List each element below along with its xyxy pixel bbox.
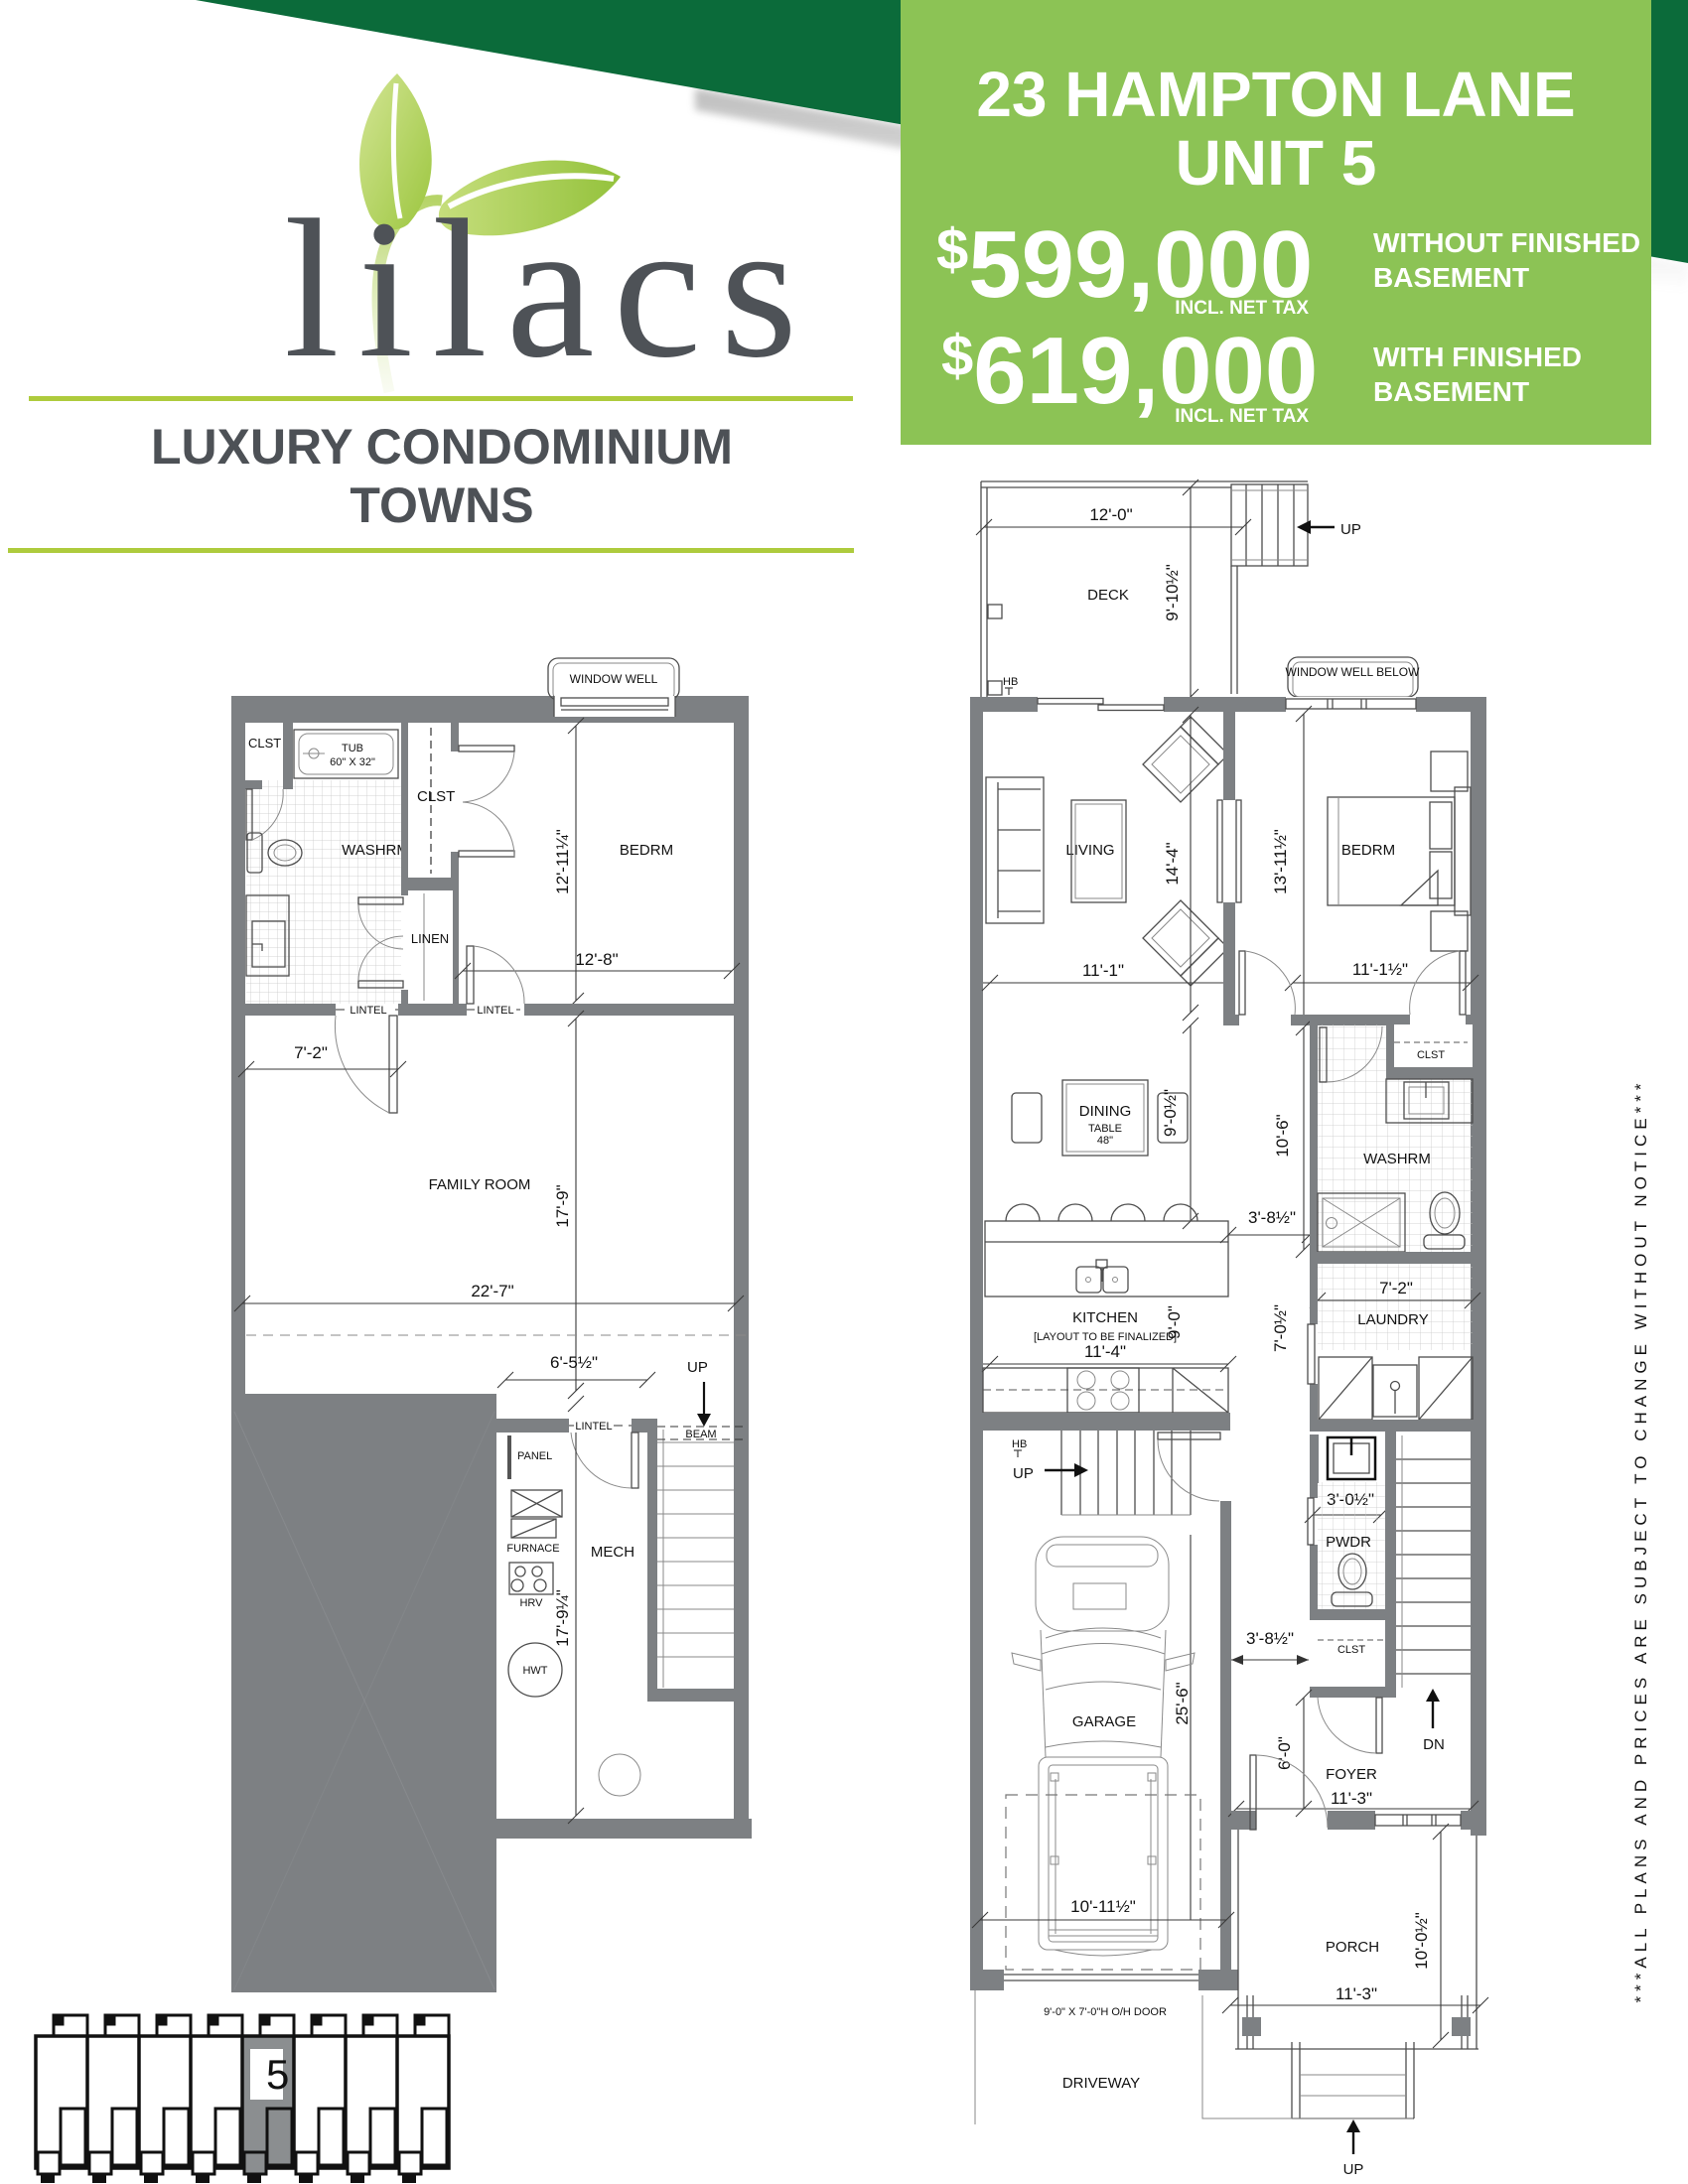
svg-text:TUB: TUB xyxy=(342,743,363,754)
svg-text:LINTEL: LINTEL xyxy=(350,1005,386,1017)
svg-text:11'-1½": 11'-1½" xyxy=(1352,960,1408,979)
svg-text:FOYER: FOYER xyxy=(1326,1766,1377,1783)
svg-text:DRIVEWAY: DRIVEWAY xyxy=(1062,2075,1140,2092)
svg-text:12'-11¼": 12'-11¼" xyxy=(553,829,572,894)
svg-text:CLST: CLST xyxy=(417,788,455,805)
svg-text:48": 48" xyxy=(1097,1135,1113,1147)
svg-text:HRV: HRV xyxy=(519,1597,543,1609)
svg-text:BEDRM: BEDRM xyxy=(620,842,673,859)
svg-text:DECK: DECK xyxy=(1087,587,1129,604)
svg-text:BEDRM: BEDRM xyxy=(1341,842,1395,859)
svg-text:MECH: MECH xyxy=(591,1544,634,1561)
svg-text:CLST: CLST xyxy=(1337,1644,1365,1656)
svg-text:CLST: CLST xyxy=(1417,1049,1445,1061)
svg-text:25'-6": 25'-6" xyxy=(1173,1682,1192,1724)
svg-text:10'-6": 10'-6" xyxy=(1273,1114,1292,1157)
svg-text:HB: HB xyxy=(1012,1438,1027,1450)
svg-text:13'-11½": 13'-11½" xyxy=(1271,829,1290,894)
svg-text:BEAM: BEAM xyxy=(685,1429,716,1440)
svg-text:KITCHEN: KITCHEN xyxy=(1072,1309,1138,1326)
svg-text:11'-3": 11'-3" xyxy=(1336,1984,1377,2003)
svg-text:11'-4": 11'-4" xyxy=(1084,1342,1126,1361)
svg-text:9'-0½": 9'-0½" xyxy=(1161,1089,1180,1137)
svg-text:CLST: CLST xyxy=(248,736,281,751)
svg-text:11'-3": 11'-3" xyxy=(1331,1789,1372,1808)
svg-text:7'-2": 7'-2" xyxy=(1379,1279,1413,1297)
svg-text:PANEL: PANEL xyxy=(517,1450,552,1462)
svg-text:DINING: DINING xyxy=(1079,1103,1132,1120)
svg-text:HB: HB xyxy=(1003,676,1018,688)
svg-text:11'-1": 11'-1" xyxy=(1082,961,1124,980)
svg-text:60" X 32": 60" X 32" xyxy=(330,756,375,768)
svg-text:5: 5 xyxy=(266,2051,289,2098)
svg-text:12'-8": 12'-8" xyxy=(575,950,618,969)
svg-text:GARAGE: GARAGE xyxy=(1072,1713,1136,1730)
svg-text:9'-0": 9'-0" xyxy=(1165,1305,1184,1339)
svg-text:HWT: HWT xyxy=(522,1665,547,1677)
svg-text:9'-10½": 9'-10½" xyxy=(1163,564,1182,620)
svg-text:UP: UP xyxy=(1343,2161,1364,2178)
svg-text:9'-0" X 7'-0"H O/H DOOR: 9'-0" X 7'-0"H O/H DOOR xyxy=(1044,2006,1167,2018)
svg-text:DN: DN xyxy=(1423,1736,1445,1753)
svg-text:***ALL PLANS AND PRICES ARE SU: ***ALL PLANS AND PRICES ARE SUBJECT TO C… xyxy=(1631,1079,1650,2003)
svg-text:PORCH: PORCH xyxy=(1326,1939,1379,1956)
svg-text:WINDOW WELL BELOW: WINDOW WELL BELOW xyxy=(1286,665,1421,679)
svg-text:FURNACE: FURNACE xyxy=(506,1543,559,1555)
svg-text:14'-4": 14'-4" xyxy=(1163,842,1182,885)
svg-text:3'-8½": 3'-8½" xyxy=(1248,1208,1296,1227)
svg-text:LINTEL: LINTEL xyxy=(477,1005,513,1017)
svg-text:UP: UP xyxy=(1013,1465,1034,1482)
svg-text:WASHRM: WASHRM xyxy=(342,842,409,859)
svg-text:10'-11½": 10'-11½" xyxy=(1070,1897,1136,1916)
svg-text:6'-5½": 6'-5½" xyxy=(550,1353,598,1372)
svg-text:10'-0½": 10'-0½" xyxy=(1412,1912,1431,1969)
svg-text:17'-9¼": 17'-9¼" xyxy=(553,1589,572,1646)
svg-text:PWDR: PWDR xyxy=(1326,1534,1371,1551)
svg-text:LAUNDRY: LAUNDRY xyxy=(1357,1311,1428,1328)
svg-text:12'-0": 12'-0" xyxy=(1089,505,1132,524)
svg-text:17'-9": 17'-9" xyxy=(553,1184,572,1227)
svg-text:LIVING: LIVING xyxy=(1065,842,1114,859)
svg-text:UP: UP xyxy=(687,1359,708,1376)
svg-text:3'-8½": 3'-8½" xyxy=(1246,1629,1294,1648)
svg-text:FAMILY ROOM: FAMILY ROOM xyxy=(429,1176,531,1193)
svg-text:TABLE: TABLE xyxy=(1088,1123,1122,1135)
svg-text:7'-2": 7'-2" xyxy=(294,1043,328,1062)
svg-text:LINEN: LINEN xyxy=(411,931,449,946)
svg-text:LINTEL: LINTEL xyxy=(575,1421,612,1433)
svg-text:22'-7": 22'-7" xyxy=(471,1282,513,1300)
svg-text:WINDOW WELL: WINDOW WELL xyxy=(570,672,658,686)
svg-text:7'-0½": 7'-0½" xyxy=(1271,1304,1290,1352)
svg-text:UP: UP xyxy=(1340,521,1361,538)
svg-text:WASHRM: WASHRM xyxy=(1363,1151,1431,1167)
